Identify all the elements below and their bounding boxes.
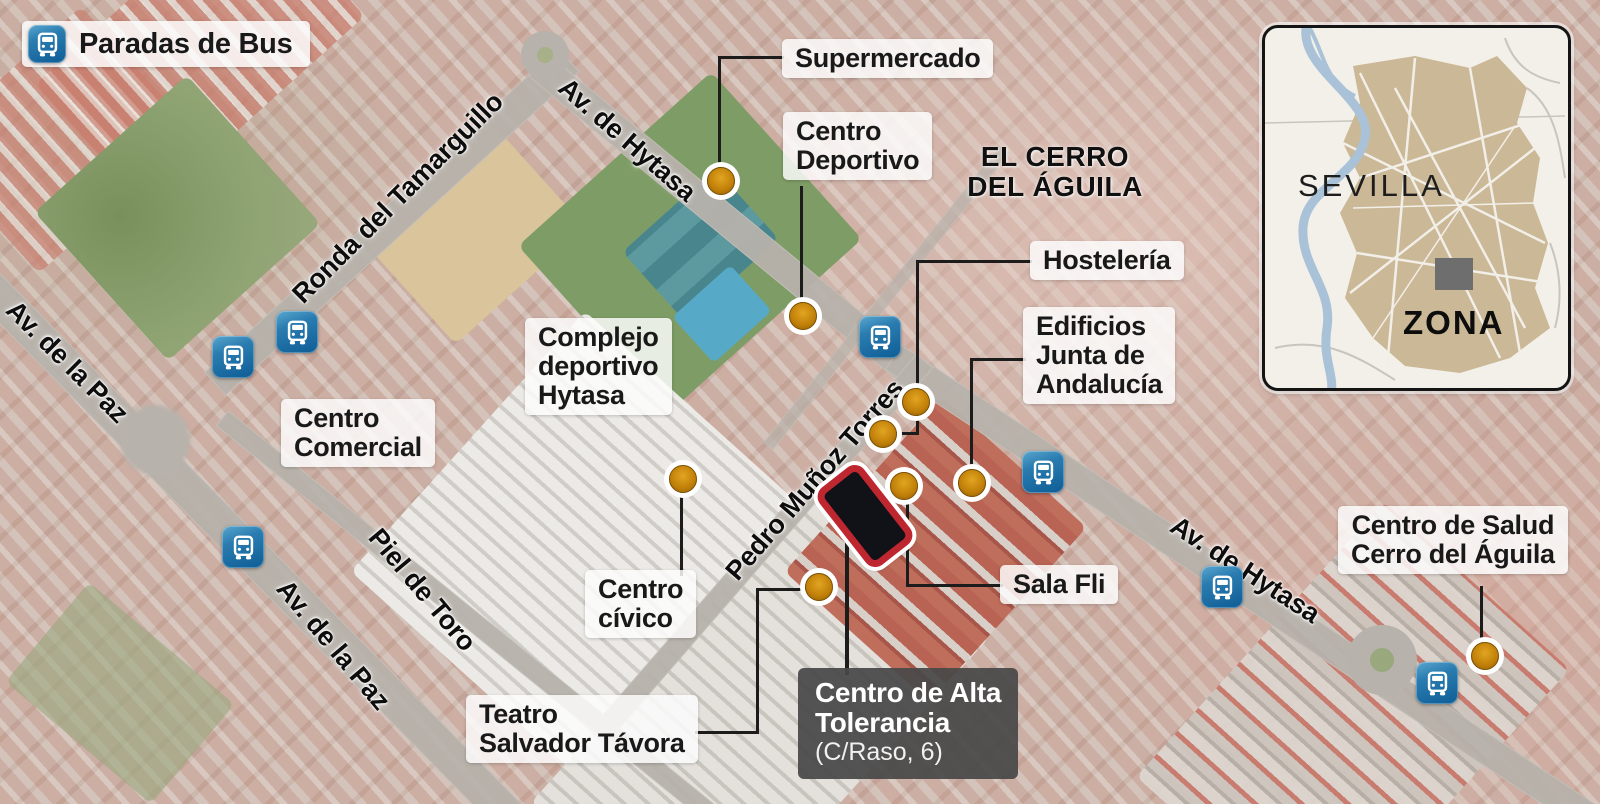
district-line: EL CERRO (950, 142, 1160, 172)
bus-stop-icon (276, 311, 318, 353)
district-line: DEL ÁGUILA (950, 172, 1160, 202)
callout-line: Hytasa (538, 381, 659, 410)
leader-line (970, 358, 1026, 361)
inset-map-graphic: SEVILLA ZONA (1265, 28, 1568, 388)
leader-line (695, 731, 759, 734)
callout-complejo-deportivo: Complejo deportivo Hytasa (525, 318, 672, 415)
bus-icon (28, 25, 66, 63)
leader-line (756, 589, 759, 734)
street-label-av-de-la-paz-top: Av. de la Paz (0, 295, 134, 430)
poi-dot-sala-fli (890, 472, 918, 500)
leader-line (1480, 586, 1483, 648)
inset-locator-map: SEVILLA ZONA (1262, 25, 1571, 391)
callout-line: Hostelería (1043, 246, 1171, 275)
leader-line (906, 584, 1003, 587)
park-patch (5, 582, 234, 804)
callout-line: Centro (796, 117, 919, 146)
callout-line: deportivo (538, 352, 659, 381)
leader-line (756, 588, 808, 591)
poi-dot-supermercado (707, 167, 735, 195)
bus-stop-icon (1022, 451, 1064, 493)
poi-dot-hosteleria-2 (869, 420, 897, 448)
callout-line: Deportivo (796, 146, 919, 175)
callout-line: Edificios (1036, 312, 1162, 341)
callout-line: Complejo (538, 323, 659, 352)
callout-teatro-salvador-tavora: Teatro Salvador Távora (466, 695, 698, 763)
bus-stop-icon (859, 316, 901, 358)
poi-dot-hosteleria (902, 388, 930, 416)
leader-line (845, 540, 849, 675)
main-callout-address: (C/Raso, 6) (815, 738, 1001, 767)
callout-edificios-junta: Edificios Junta de Andalucía (1023, 307, 1175, 404)
leader-line (970, 358, 973, 472)
poi-dot-edificios-junta (958, 469, 986, 497)
callout-centro-de-salud: Centro de Salud Cerro del Águila (1338, 506, 1568, 574)
satellite-map: Ronda del Tamarguillo Av. de Hytasa Av. … (0, 0, 1600, 804)
leader-line (916, 260, 1032, 263)
legend-paradas-de-bus: Paradas de Bus (22, 21, 310, 67)
leader-line (680, 488, 683, 576)
road-junction (120, 405, 190, 475)
bus-stop-icon (222, 526, 264, 568)
roundabout (521, 31, 569, 79)
callout-line: Salvador Távora (479, 729, 685, 758)
poi-dot-centro-deportivo (789, 302, 817, 330)
callout-line: Centro (294, 404, 422, 433)
callout-supermercado: Supermercado (782, 39, 993, 78)
legend-label: Paradas de Bus (79, 28, 292, 61)
callout-line: cívico (598, 604, 683, 633)
callout-centro-deportivo: Centro Deportivo (783, 112, 932, 180)
poi-dot-centro-civico (669, 465, 697, 493)
callout-centro-de-alta-tolerancia: Centro de Alta Tolerancia (C/Raso, 6) (798, 668, 1018, 779)
inset-zona-label: ZONA (1403, 304, 1505, 341)
main-callout-title: Tolerancia (815, 708, 1001, 738)
callout-centro-civico: Centro cívico (585, 570, 696, 638)
poi-dot-teatro (805, 573, 833, 601)
callout-line: Teatro (479, 700, 685, 729)
bus-stop-icon (1201, 566, 1243, 608)
callout-line: Supermercado (795, 44, 980, 73)
bus-stop-icon (212, 336, 254, 378)
main-callout-title: Centro de Alta (815, 678, 1001, 708)
roundabout (1347, 625, 1417, 695)
district-label-el-cerro-del-aguila: EL CERRO DEL ÁGUILA (950, 142, 1160, 202)
callout-line: Sala Fli (1013, 570, 1105, 599)
leader-line (718, 56, 784, 59)
inset-city-label: SEVILLA (1298, 168, 1445, 203)
callout-sala-fli: Sala Fli (1000, 565, 1118, 604)
leader-line (718, 56, 721, 168)
callout-line: Comercial (294, 433, 422, 462)
inset-zona-square (1435, 258, 1473, 290)
callout-centro-comercial: Centro Comercial (281, 399, 435, 467)
poi-dot-centro-salud (1471, 642, 1499, 670)
leader-line (800, 186, 803, 304)
callout-hosteleria: Hostelería (1030, 241, 1184, 280)
bus-stop-icon (1416, 662, 1458, 704)
callout-line: Centro de Salud (1351, 511, 1555, 540)
callout-line: Centro (598, 575, 683, 604)
callout-line: Andalucía (1036, 370, 1162, 399)
callout-line: Junta de (1036, 341, 1162, 370)
callout-line: Cerro del Águila (1351, 540, 1555, 569)
